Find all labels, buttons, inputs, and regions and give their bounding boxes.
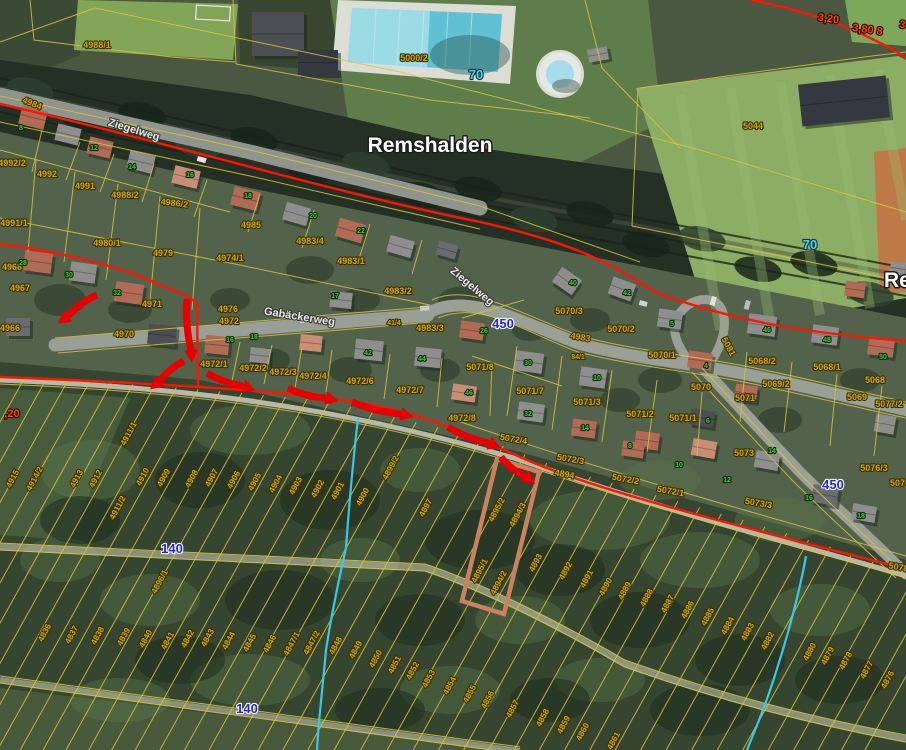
parcel-label: 4988/1 bbox=[83, 40, 111, 50]
house-number-label: 8 bbox=[628, 443, 632, 450]
parcel-label: 4972/3 bbox=[269, 367, 297, 377]
house-number-label: 48 bbox=[823, 337, 831, 344]
house-number-label: 42 bbox=[364, 350, 372, 357]
parcel-label: 5071/3 bbox=[573, 397, 601, 407]
parcel-label: 5069 bbox=[847, 392, 867, 402]
house-number-label: 12 bbox=[90, 145, 98, 152]
house-number-label: 28 bbox=[19, 260, 27, 267]
parcel-label: 5068/1 bbox=[813, 362, 841, 372]
place-label: Re bbox=[884, 269, 906, 292]
parcel-label: 4983/1 bbox=[337, 256, 365, 266]
map-viewport[interactable]: 4988/15000/2504449844992/2499249914988/2… bbox=[0, 0, 906, 750]
house-number-label: 16 bbox=[186, 172, 194, 179]
parcel-label: 4972/8 bbox=[448, 413, 476, 423]
parcel-label: 4972/2 bbox=[239, 363, 267, 373]
car bbox=[420, 305, 429, 311]
parcel-label: 5070/2 bbox=[607, 324, 635, 334]
parcel-label: 4992 bbox=[37, 169, 57, 179]
house-number-label: 14 bbox=[581, 425, 589, 432]
house-number-label: 16 bbox=[805, 495, 813, 502]
route-number-label: 70 bbox=[803, 237, 817, 252]
parcel-label: 5071/1 bbox=[669, 413, 697, 423]
house-number-label: 32 bbox=[524, 411, 532, 418]
parcel-label: 5068 bbox=[865, 375, 885, 385]
parcel-label: 5077/2 bbox=[875, 399, 903, 409]
parcel-label: 5070 bbox=[691, 382, 711, 392]
parcel-label: 41/4 bbox=[387, 320, 401, 327]
parcel-label: 5000/2 bbox=[400, 53, 428, 63]
house-number-label: 50 bbox=[879, 354, 887, 361]
house-number-label: 20 bbox=[309, 213, 317, 220]
parcel-label: 5071 bbox=[735, 393, 755, 403]
house-number-label: 8 bbox=[19, 125, 23, 132]
house-number-label: 30 bbox=[524, 360, 532, 367]
parcel-label: 4972/7 bbox=[396, 385, 424, 395]
house-number-label: 42 bbox=[623, 290, 631, 297]
house-number-label: 32 bbox=[113, 290, 121, 297]
house-number-label: 5 bbox=[670, 321, 674, 328]
route-number-label: 450 bbox=[492, 316, 514, 331]
parcel-label: 5068/2 bbox=[748, 356, 776, 366]
parcel-label: 5070/1 bbox=[648, 350, 676, 360]
house-number-label: 14 bbox=[768, 448, 776, 455]
house-number-label: 18 bbox=[857, 513, 865, 520]
measurement-label: ,20 bbox=[4, 408, 19, 420]
parcel-label: 4976 bbox=[218, 304, 238, 314]
house-number-label: 4 bbox=[704, 363, 708, 370]
route-number-label: 70 bbox=[469, 67, 483, 82]
house-number-label: 18 bbox=[250, 334, 258, 341]
parcel-label: 5044 bbox=[743, 121, 763, 131]
parcel-label: 5071/8 bbox=[466, 362, 494, 372]
parcel-label: 4983/4 bbox=[296, 236, 324, 246]
parcel-label: 4991/1 bbox=[0, 218, 28, 228]
parcel-label: 5071/2 bbox=[626, 409, 654, 419]
parcel-label: 84/1 bbox=[571, 354, 585, 361]
parcel-label: 4992/2 bbox=[0, 158, 26, 168]
measurement-label: 3 bbox=[899, 19, 906, 32]
route-number-label: 450 bbox=[822, 477, 844, 492]
parcel-label: 5076 bbox=[890, 478, 906, 488]
house-number-label: 46 bbox=[465, 390, 473, 397]
parcel-label: 5076/3 bbox=[860, 463, 888, 473]
parcel-label: 4983/2 bbox=[384, 286, 412, 296]
house-number-label: 12 bbox=[723, 477, 731, 484]
parcel-label: 5070/3 bbox=[555, 306, 583, 316]
parcel-label: 4979 bbox=[153, 248, 173, 258]
route-number-label: 140 bbox=[236, 701, 258, 716]
parcel-label: 4980/1 bbox=[93, 238, 121, 248]
place-label: Remshalden bbox=[368, 134, 493, 157]
parcel-label: 4974/1 bbox=[216, 253, 244, 263]
parcel-label: 4971 bbox=[142, 299, 162, 309]
parcel-label: 4972 bbox=[219, 316, 239, 326]
parcel-label: 4966 bbox=[0, 323, 20, 333]
house-number-label: 30 bbox=[65, 272, 73, 279]
house-number-label: 22 bbox=[357, 228, 365, 235]
parcel-label: 4983/3 bbox=[416, 323, 444, 333]
parcel-label: 4972/4 bbox=[299, 371, 327, 381]
parcel-label: 4988/2 bbox=[111, 190, 139, 200]
house-number-label: 10 bbox=[675, 462, 683, 469]
house-number-label: 40 bbox=[569, 280, 577, 287]
aerial-cadastral-map[interactable]: 4988/15000/2504449844992/2499249914988/2… bbox=[0, 0, 906, 750]
house-number-label: 16 bbox=[226, 337, 234, 344]
house-number-label: 6 bbox=[706, 418, 710, 425]
house-number-label: 14 bbox=[128, 164, 136, 171]
parcel-label: 5073 bbox=[734, 448, 754, 458]
parcel-label: 5069/2 bbox=[762, 379, 790, 389]
house-number-label: 18 bbox=[244, 193, 252, 200]
parcel-label: 4972/6 bbox=[346, 376, 374, 386]
parcel-label: 4991 bbox=[75, 181, 95, 191]
parcel-label: 4967 bbox=[10, 283, 30, 293]
house-number-label: 46 bbox=[763, 327, 771, 334]
house-number-label: 26 bbox=[480, 328, 488, 335]
parcel-label: 4985 bbox=[241, 220, 261, 230]
parcel-label: 5071/7 bbox=[516, 386, 544, 396]
parcel-label: 4970 bbox=[114, 329, 134, 339]
house-number-label: 10 bbox=[593, 375, 601, 382]
house-number-label: 44 bbox=[418, 356, 426, 363]
route-number-label: 140 bbox=[161, 541, 183, 556]
house-number-label: 17 bbox=[331, 293, 339, 300]
parcel-label: 4972/1 bbox=[200, 359, 228, 369]
